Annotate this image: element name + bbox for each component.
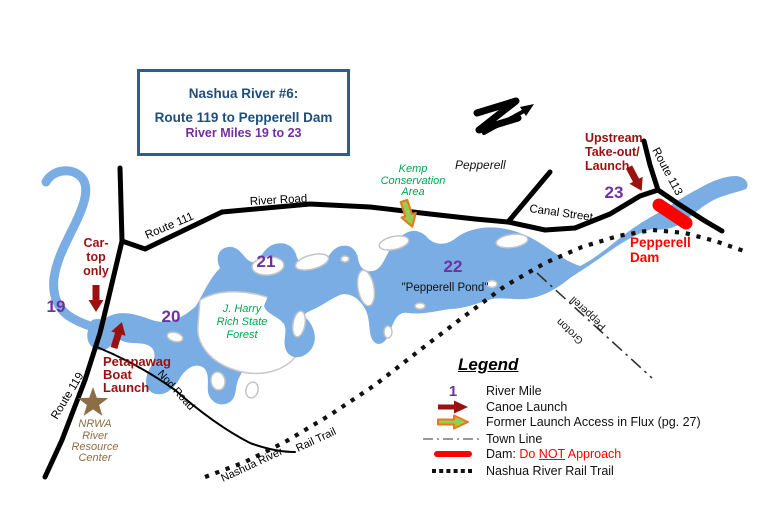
kemp-conservation-label: Kemp Conservation Area [381,163,446,198]
svg-text:top: top [86,250,106,264]
svg-text:J. Harry: J. Harry [222,303,263,315]
pepperell-dam-label: Pepperell Dam [630,235,691,265]
flux-arrow-icon [436,414,470,430]
legend-row-flux: Former Launch Access in Flux (pg. 27) [420,414,764,430]
town-line-sample-icon [422,435,484,443]
map-page: Pepperell Kemp Conservation Area River R… [0,0,764,532]
canal-street-label: Canal Street [529,203,595,224]
nrwa-center-label: NRWA River Resource Center [71,418,118,464]
legend-row-rail-trail: Nashua River Rail Trail [420,463,764,479]
car-top-only-label: Car- top only [83,236,109,278]
rail-trail-label-1: Nashua River [219,446,285,485]
upstream-takeout-label: Upstream Take-out/ Launch [585,131,643,173]
mile-23: 23 [605,183,624,202]
flux-launch-arrow-icon [397,199,420,229]
legend-rail-trail-label: Nashua River Rail Trail [486,464,614,478]
svg-text:Rich State: Rich State [217,316,268,328]
legend-flux-label: Former Launch Access in Flux (pg. 27) [486,415,701,429]
town-line-groton-label: Groton [554,316,586,347]
rail-trail-sample-icon [431,467,475,475]
mile-22: 22 [444,257,463,276]
mile-20: 20 [162,307,181,326]
legend-row-canoe-launch: Canoe Launch [420,399,764,415]
svg-text:Car-: Car- [83,236,108,250]
car-top-launch-arrow-icon [89,285,104,312]
legend-dam-label: Dam: Do NOT Approach [486,447,621,461]
river-mile-symbol: 1 [449,383,457,400]
svg-text:Dam: Dam [630,250,659,265]
legend-canoe-launch-label: Canoe Launch [486,400,567,414]
mile-21: 21 [257,252,276,271]
legend-title: Legend [458,355,518,375]
pepperell-pond-label: "Pepperell Pond" [402,282,489,294]
north-arrow-icon [477,101,534,133]
svg-text:Forest: Forest [226,329,258,341]
legend-dam-warn-pre: Do [519,447,538,461]
dam-sample-icon [433,449,473,459]
svg-text:Launch: Launch [585,159,629,173]
svg-text:Take-out/: Take-out/ [585,145,640,159]
map-title-line1: Nashua River #6: [189,86,299,101]
svg-text:Center: Center [78,452,112,464]
legend-row-dam: Dam: Do NOT Approach [420,446,764,462]
legend-town-line-label: Town Line [486,432,542,446]
svg-text:Launch: Launch [103,380,149,395]
legend-row-river-mile: 1 River Mile [420,383,764,399]
legend-row-town-line: Town Line [420,431,764,447]
map-title-line3: River Miles 19 to 23 [185,126,301,140]
svg-text:Upstream: Upstream [585,131,643,145]
svg-text:Kemp: Kemp [399,163,428,175]
town-label-pepperell: Pepperell [455,158,506,172]
legend: Legend 1 River Mile Canoe Launch Former … [420,353,764,488]
map-title-box: Nashua River #6: Route 119 to Pepperell … [137,69,350,156]
legend-dam-warn-not: NOT [539,447,565,461]
svg-text:Area: Area [400,186,424,198]
canoe-launch-arrow-icon [436,399,470,415]
legend-dam-prefix: Dam: [486,447,519,461]
map-title-line2: Route 119 to Pepperell Dam [155,110,333,125]
mile-19: 19 [47,297,66,316]
legend-dam-warn-post: Approach [565,447,621,461]
legend-river-mile-label: River Mile [486,384,542,398]
svg-text:only: only [83,264,109,278]
svg-text:Pepperell: Pepperell [630,235,691,250]
rail-trail-label-2: Rail Trail [294,426,338,455]
svg-text:NRWA: NRWA [78,418,111,430]
